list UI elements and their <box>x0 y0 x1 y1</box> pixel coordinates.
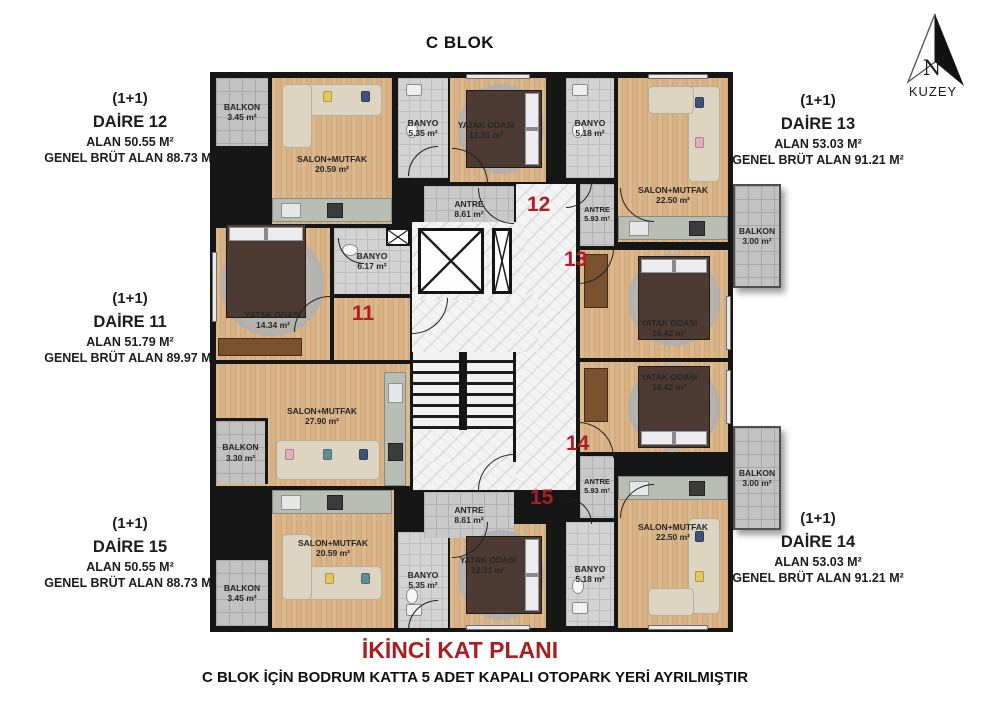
cushion <box>695 137 704 148</box>
pillows <box>229 227 303 241</box>
sink <box>406 84 422 96</box>
room-balkon-d14: BALKON3.00 m² <box>733 426 781 530</box>
room-label: ANTRE5.93 m² <box>584 478 610 496</box>
bed <box>226 224 306 318</box>
panel-name: DAİRE 14 <box>703 533 933 552</box>
cushion <box>323 91 332 102</box>
panel-alan: ALAN 53.03 M² <box>703 555 933 569</box>
wardrobe <box>584 368 608 422</box>
plan-title: İKİNCİ KAT PLANI <box>250 637 670 664</box>
sink <box>572 84 588 96</box>
room-label: BALKON3.00 m² <box>739 226 775 246</box>
cushion <box>361 91 370 102</box>
room-label: BALKON3.00 m² <box>739 468 775 488</box>
plan-note: C BLOK İÇİN BODRUM KATTA 5 ADET KAPALI O… <box>135 669 815 686</box>
cushion <box>359 449 368 460</box>
elevator-small-icon <box>492 228 512 294</box>
staircase <box>413 352 513 462</box>
stove <box>388 443 403 461</box>
floor-plan-sheet: C BLOK N KUZEY (1+1) DAİRE 12 ALAN 50.55… <box>0 0 1000 707</box>
window <box>648 625 708 630</box>
room-label: ANTRE5.93 m² <box>584 206 610 224</box>
block-title: C BLOK <box>330 33 590 53</box>
room-label: SALON+MUTFAK27.90 m² <box>287 406 357 426</box>
wardrobe <box>218 338 302 356</box>
window <box>212 252 217 322</box>
kitchen-counter <box>384 372 406 486</box>
kitchen-counter <box>618 216 728 240</box>
toilet <box>406 588 418 604</box>
room-balkon-d15: BALKON3.45 m² <box>216 560 268 626</box>
room-label: SALON+MUTFAK22.50 m² <box>638 185 708 205</box>
sofa-arm <box>648 588 694 616</box>
window <box>726 370 731 424</box>
stair-flight <box>467 352 513 430</box>
room-label: BANYO5.35 m² <box>408 570 439 590</box>
panel-brut: GENEL BRÜT ALAN 91.21 M² <box>703 153 933 167</box>
window <box>726 296 731 350</box>
unit-number-15: 15 <box>530 486 553 510</box>
panel-name: DAİRE 13 <box>703 115 933 134</box>
room-label: SALON+MUTFAK20.59 m² <box>298 538 368 558</box>
unit-number-14: 14 <box>566 432 589 456</box>
room-balkon-d13: BALKON3.00 m² <box>733 184 781 288</box>
room-balkon-d12: BALKON3.45 m² <box>216 78 268 146</box>
stove <box>327 203 343 218</box>
room-label: BANYO5.18 m² <box>575 564 606 584</box>
panel-daire-13: (1+1) DAİRE 13 ALAN 53.03 M² GENEL BRÜT … <box>703 92 933 167</box>
room-label: YATAK ODASI12.31 m² <box>458 120 539 140</box>
room-label: YATAK ODASI16.42 m² <box>641 318 698 338</box>
room-label: SALON+MUTFAK20.59 m² <box>297 128 367 174</box>
unit-number-12: 12 <box>527 193 550 217</box>
cushion <box>695 97 704 108</box>
room-label: YATAK ODASI14.34 m² <box>245 310 302 330</box>
cushion <box>361 573 370 584</box>
sink <box>388 383 403 403</box>
stove <box>689 481 705 496</box>
elevator-icon <box>418 228 484 294</box>
stair-flight <box>413 352 459 430</box>
cushion <box>285 449 294 460</box>
room-label: BALKON3.30 m² <box>222 442 258 462</box>
kitchen-counter <box>272 490 392 514</box>
sofa <box>276 440 380 480</box>
sink <box>281 203 301 218</box>
panel-alan: ALAN 53.03 M² <box>703 137 933 151</box>
room-label: ANTRE8.61 m² <box>454 505 483 525</box>
room-label: ANTRE8.61 m² <box>454 199 483 219</box>
cushion <box>323 449 332 460</box>
sofa-arm <box>648 86 694 114</box>
pillows <box>525 539 539 611</box>
stove <box>689 221 705 236</box>
unit-number-13: 13 <box>564 248 587 272</box>
north-letter: N <box>912 56 952 80</box>
room-label: BALKON3.45 m² <box>224 102 260 122</box>
room-label: BANYO5.18 m² <box>575 118 606 138</box>
window <box>466 625 530 630</box>
room-label: BANYO6.17 m² <box>357 251 388 271</box>
window <box>648 74 708 79</box>
room-label: BALKON3.45 m² <box>224 583 260 603</box>
room-label: YATAK ODASI12.31 m² <box>460 555 517 575</box>
stove <box>327 495 343 510</box>
sink <box>629 221 649 236</box>
pillows <box>641 259 707 273</box>
room-label: BANYO5.35 m² <box>408 118 439 138</box>
panel-type: (1+1) <box>703 92 933 109</box>
kitchen-counter <box>272 198 392 222</box>
cushion <box>695 571 704 582</box>
unit-number-11: 11 <box>352 302 374 326</box>
shaft-icon <box>386 228 410 246</box>
panel-brut: GENEL BRÜT ALAN 91.21 M² <box>703 571 933 585</box>
building-plan: BALKON3.45 m² SALON+MUTFAK20.59 m² BANYO… <box>210 72 733 632</box>
room-label: SALON+MUTFAK22.50 m² <box>638 522 708 542</box>
room-label: YATAK ODASI16.42 m² <box>641 372 698 392</box>
sink <box>572 602 588 614</box>
sink <box>281 495 301 510</box>
cushion <box>325 573 334 584</box>
window <box>466 74 530 79</box>
pillows <box>641 431 707 445</box>
room-balkon-d11: BALKON3.30 m² <box>216 418 268 484</box>
